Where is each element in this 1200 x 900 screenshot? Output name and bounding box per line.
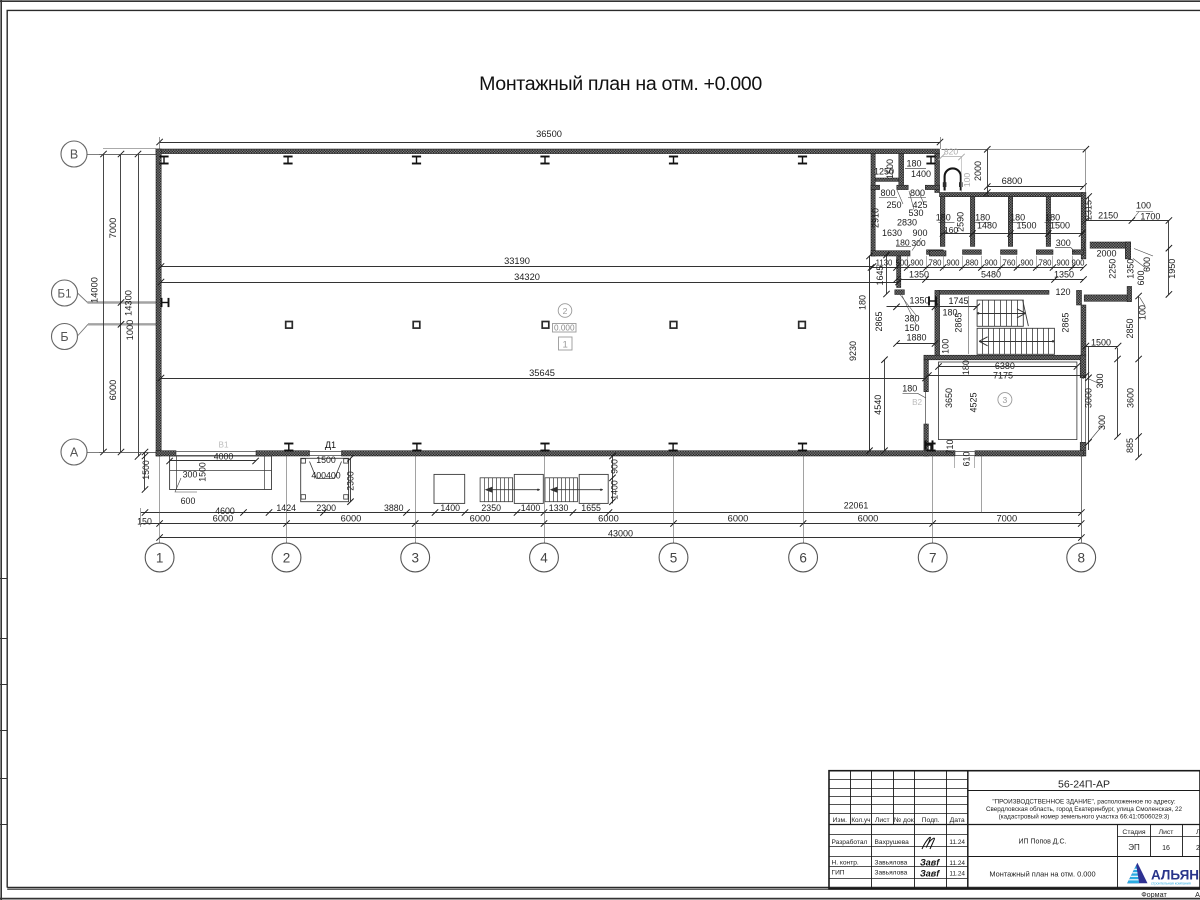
svg-text:5: 5	[670, 550, 678, 565]
svg-text:3880: 3880	[384, 503, 404, 513]
svg-text:1500: 1500	[198, 462, 208, 482]
svg-text:Подп.: Подп.	[922, 817, 940, 824]
svg-text:900: 900	[984, 258, 998, 267]
svg-text:7000: 7000	[108, 218, 118, 239]
svg-text:6000: 6000	[341, 513, 362, 523]
svg-text:1480: 1480	[977, 221, 997, 231]
svg-text:820: 820	[944, 147, 959, 157]
svg-text:ГИП: ГИП	[832, 869, 845, 876]
svg-text:6800: 6800	[1002, 176, 1023, 186]
svg-text:Монтажный план на отм. +0.000: Монтажный план на отм. +0.000	[479, 73, 762, 95]
svg-text:1400: 1400	[521, 503, 541, 513]
svg-text:14000: 14000	[90, 277, 100, 303]
svg-text:43000: 43000	[608, 528, 633, 538]
svg-text:6000: 6000	[108, 380, 118, 401]
svg-text:2830: 2830	[897, 218, 917, 228]
svg-text:АЛЬЯНС: АЛЬЯНС	[1151, 868, 1200, 883]
svg-text:780: 780	[1038, 258, 1052, 267]
svg-text:180: 180	[936, 213, 951, 223]
svg-text:14300: 14300	[124, 290, 134, 316]
svg-text:Кол.уч: Кол.уч	[851, 817, 870, 824]
svg-text:4: 4	[540, 550, 548, 565]
svg-text:6380: 6380	[995, 361, 1015, 371]
svg-text:Н. контр.: Н. контр.	[832, 859, 859, 866]
svg-text:В2: В2	[912, 398, 922, 407]
svg-text:1745: 1745	[948, 296, 968, 306]
svg-text:150: 150	[137, 517, 152, 527]
svg-text:Разработал: Разработал	[832, 838, 868, 846]
svg-text:180: 180	[858, 295, 868, 310]
svg-text:1500: 1500	[1050, 221, 1070, 231]
svg-text:1350: 1350	[909, 296, 929, 306]
svg-text:1400: 1400	[440, 503, 460, 513]
svg-text:Д1: Д1	[325, 440, 336, 450]
svg-text:900: 900	[912, 228, 927, 238]
svg-text:11.24: 11.24	[949, 871, 965, 878]
svg-text:34320: 34320	[514, 272, 540, 282]
svg-text:2000: 2000	[1096, 249, 1116, 259]
svg-text:800: 800	[910, 188, 925, 198]
svg-text:900: 900	[1071, 258, 1085, 267]
svg-text:35645: 35645	[529, 368, 555, 378]
svg-text:Вахрушева: Вахрушева	[875, 839, 910, 846]
svg-text:1350: 1350	[1125, 259, 1135, 279]
svg-text:1500: 1500	[885, 159, 895, 179]
svg-text:6000: 6000	[598, 513, 619, 523]
svg-text:1700: 1700	[1140, 212, 1160, 222]
svg-text:Завf: Завf	[920, 858, 940, 868]
svg-text:Завf: Завf	[920, 869, 940, 879]
svg-text:4000: 4000	[214, 452, 234, 462]
svg-text:2865: 2865	[954, 313, 964, 333]
svg-text:0.000: 0.000	[554, 324, 575, 333]
svg-text:120: 120	[1055, 287, 1070, 297]
svg-text:1400: 1400	[911, 169, 931, 179]
svg-text:1655: 1655	[581, 503, 601, 513]
svg-text:100: 100	[941, 339, 951, 354]
svg-text:11.24: 11.24	[949, 860, 965, 867]
svg-text:11.24: 11.24	[949, 839, 965, 846]
svg-text:16: 16	[1162, 845, 1170, 852]
svg-text:2000: 2000	[973, 161, 983, 181]
svg-text:А: А	[70, 446, 79, 460]
svg-text:Лист: Лист	[875, 817, 890, 824]
svg-text:22061: 22061	[844, 501, 869, 511]
svg-text:1645: 1645	[875, 265, 885, 285]
svg-text:710: 710	[945, 439, 955, 454]
svg-text:Свердловская область, город Ек: Свердловская область, город Екатеринбург…	[986, 805, 1183, 813]
svg-text:36500: 36500	[536, 129, 562, 139]
svg-text:Завьялова: Завьялова	[875, 859, 908, 866]
svg-text:Завьялова: Завьялова	[875, 869, 908, 876]
svg-text:1: 1	[563, 340, 568, 351]
svg-text:В: В	[70, 148, 78, 162]
svg-text:2: 2	[283, 550, 291, 565]
svg-text:7: 7	[929, 550, 937, 565]
svg-text:Стадия: Стадия	[1122, 829, 1145, 836]
svg-text:250: 250	[886, 200, 901, 210]
svg-text:2300: 2300	[316, 503, 336, 513]
svg-text:760: 760	[1002, 258, 1016, 267]
svg-text:380: 380	[904, 314, 919, 324]
svg-text:100: 100	[962, 173, 972, 188]
svg-text:ИП Попов Д.С.: ИП Попов Д.С.	[1019, 839, 1067, 846]
svg-text:2250: 2250	[1108, 259, 1118, 279]
svg-text:4525: 4525	[968, 392, 978, 412]
svg-text:6000: 6000	[470, 513, 491, 523]
svg-text:1: 1	[156, 550, 164, 565]
svg-text:180: 180	[902, 384, 917, 394]
svg-text:Дата: Дата	[950, 817, 965, 824]
svg-text:800: 800	[880, 188, 895, 198]
svg-text:2865: 2865	[1061, 313, 1071, 333]
svg-text:300: 300	[1095, 373, 1105, 388]
svg-text:Изм.: Изм.	[833, 817, 848, 824]
svg-text:Формат: Формат	[1141, 890, 1167, 899]
svg-text:1400: 1400	[610, 480, 620, 500]
svg-text:530: 530	[908, 208, 923, 218]
svg-text:"ПРОИЗВОДСТВЕННОЕ ЗДАНИЕ", рас: "ПРОИЗВОДСТВЕННОЕ ЗДАНИЕ", расположенное…	[992, 798, 1176, 805]
svg-text:1500: 1500	[1016, 221, 1036, 231]
svg-text:2865: 2865	[874, 311, 884, 331]
svg-text:100: 100	[1138, 305, 1148, 320]
svg-text:А: А	[1195, 890, 1200, 899]
svg-text:2910: 2910	[871, 208, 881, 228]
svg-text:строительная компания: строительная компания	[1151, 881, 1191, 885]
svg-text:1350: 1350	[1054, 270, 1074, 280]
svg-text:3: 3	[1003, 395, 1008, 405]
svg-text:600: 600	[181, 496, 196, 506]
svg-text:7000: 7000	[996, 513, 1017, 523]
svg-text:600: 600	[1142, 257, 1152, 272]
svg-text:300: 300	[183, 470, 198, 480]
svg-text:Б: Б	[60, 330, 68, 344]
svg-text:Листов: Листов	[1196, 829, 1200, 836]
svg-text:100: 100	[1136, 201, 1151, 211]
svg-text:№ док: № док	[894, 817, 914, 824]
svg-text:900: 900	[910, 258, 924, 267]
svg-text:900: 900	[946, 258, 960, 267]
svg-text:2: 2	[563, 306, 568, 316]
svg-text:ЭП: ЭП	[1128, 843, 1140, 852]
svg-text:1350: 1350	[909, 270, 929, 280]
svg-text:9230: 9230	[848, 341, 858, 361]
svg-text:8: 8	[1077, 550, 1085, 565]
svg-text:1330: 1330	[549, 503, 569, 513]
svg-text:1000: 1000	[125, 320, 135, 341]
svg-text:5480: 5480	[981, 270, 1001, 280]
svg-text:500: 500	[895, 258, 909, 267]
svg-text:(кадастровый номер земельного: (кадастровый номер земельного участка 66…	[999, 812, 1170, 820]
svg-text:56-24П-АР: 56-24П-АР	[1058, 779, 1110, 791]
svg-text:780: 780	[928, 258, 942, 267]
svg-text:3650: 3650	[944, 388, 954, 408]
svg-text:180: 180	[895, 237, 910, 247]
svg-text:2350: 2350	[481, 503, 501, 513]
svg-text:900: 900	[1020, 258, 1034, 267]
svg-text:300: 300	[911, 238, 926, 248]
svg-text:900: 900	[610, 459, 620, 474]
svg-text:33190: 33190	[504, 256, 530, 266]
svg-text:610: 610	[962, 451, 972, 466]
svg-text:Лист: Лист	[1159, 829, 1174, 836]
svg-text:4540: 4540	[873, 395, 883, 415]
svg-text:1880: 1880	[906, 333, 926, 343]
svg-text:150: 150	[904, 323, 919, 333]
svg-text:300: 300	[1056, 238, 1071, 248]
svg-text:2850: 2850	[1125, 318, 1135, 338]
svg-text:6000: 6000	[728, 513, 749, 523]
svg-text:180: 180	[906, 159, 921, 169]
svg-text:6000: 6000	[858, 513, 879, 523]
svg-text:Монтажный план на отм. 0.000: Монтажный план на отм. 0.000	[989, 870, 1095, 879]
svg-text:400400: 400400	[311, 471, 340, 481]
svg-text:3600: 3600	[1126, 388, 1136, 408]
svg-text:2: 2	[1196, 845, 1200, 852]
svg-text:1500: 1500	[316, 455, 336, 465]
svg-text:1500: 1500	[1091, 337, 1111, 347]
svg-text:880: 880	[965, 258, 979, 267]
svg-text:300: 300	[1097, 415, 1107, 430]
svg-text:2150: 2150	[1098, 211, 1118, 221]
svg-text:3: 3	[411, 550, 419, 565]
svg-text:В1: В1	[218, 441, 228, 450]
svg-text:Б1: Б1	[58, 289, 72, 301]
svg-text:6: 6	[799, 550, 807, 565]
svg-text:6000: 6000	[213, 513, 234, 523]
svg-text:900: 900	[1056, 258, 1070, 267]
svg-text:1500: 1500	[141, 460, 151, 480]
svg-text:885: 885	[1125, 438, 1135, 453]
